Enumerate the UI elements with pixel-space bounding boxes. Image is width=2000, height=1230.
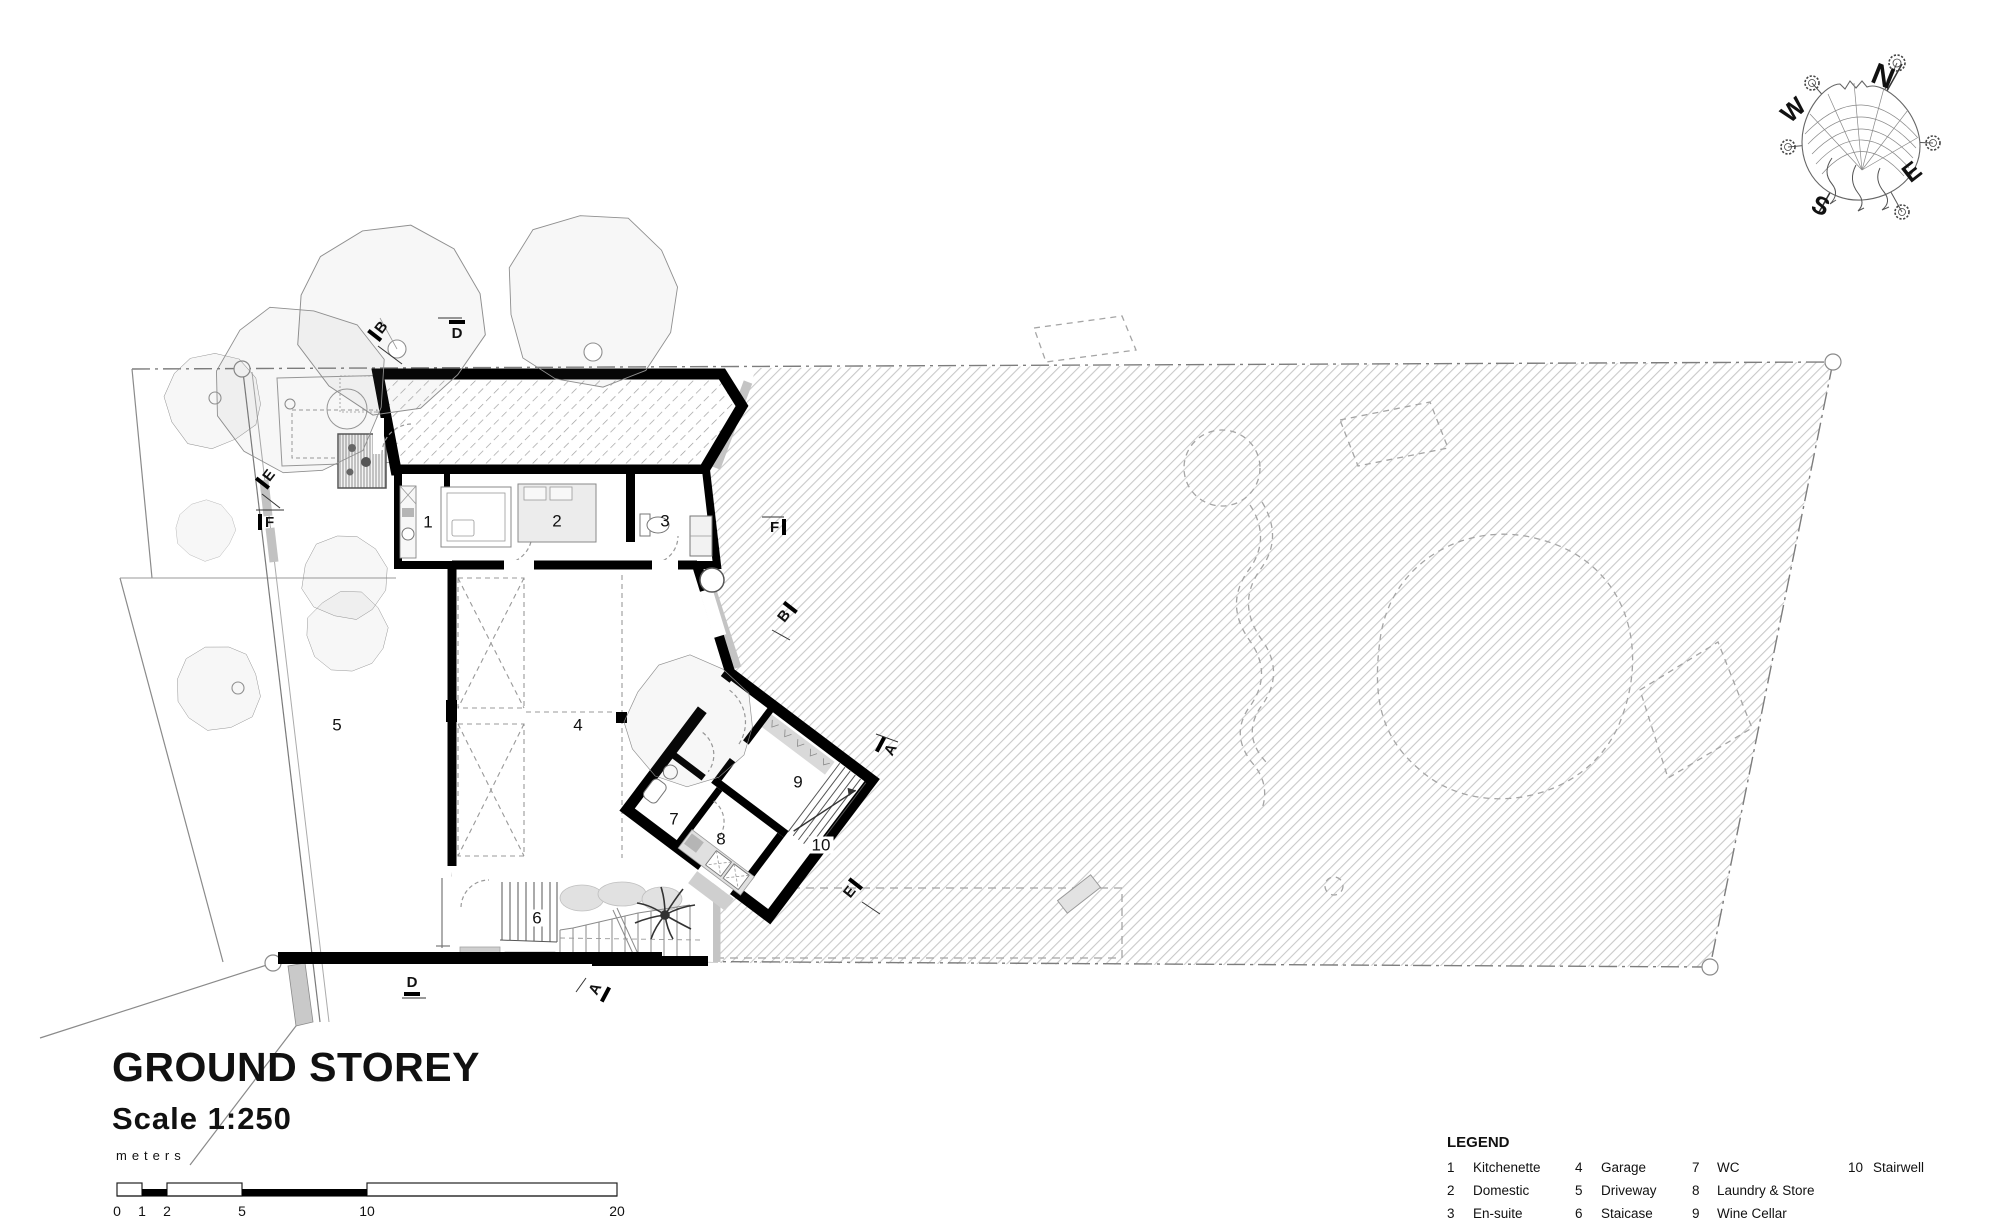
room-label-4: 4 bbox=[573, 717, 582, 734]
legend-item-9: 9Wine Cellar bbox=[1692, 1206, 1787, 1221]
room-label-1: 1 bbox=[423, 514, 432, 531]
legend-item-3: 3En-suite bbox=[1447, 1206, 1523, 1221]
room-label-10: 10 bbox=[809, 837, 834, 854]
room-label-6: 6 bbox=[529, 910, 544, 927]
page-title: GROUND STOREY bbox=[112, 1044, 480, 1091]
scale-bar bbox=[117, 1183, 617, 1196]
stair-garden bbox=[278, 866, 713, 966]
floor-plan-sheet: 1 2 3 4 5 6 7 8 9 10 B D E F F B A E D A… bbox=[0, 0, 2000, 1230]
section-marker-bar bbox=[782, 519, 786, 535]
room-label-9: 9 bbox=[793, 774, 802, 791]
room-label-7: 7 bbox=[669, 811, 678, 828]
compass-rose bbox=[1781, 55, 1940, 219]
room-label-5: 5 bbox=[332, 717, 341, 734]
legend-item-6: 6Staicase bbox=[1575, 1206, 1653, 1221]
legend-item-5: 5Driveway bbox=[1575, 1183, 1657, 1198]
section-marker-bar bbox=[449, 320, 465, 324]
room-label-3: 3 bbox=[660, 513, 669, 530]
legend-item-10: 10Stairwell bbox=[1848, 1160, 1924, 1175]
legend-item-1: 1Kitchenette bbox=[1447, 1160, 1541, 1175]
section-marker-d-bottom: D bbox=[404, 975, 420, 996]
scale-label: Scale 1:250 bbox=[112, 1101, 292, 1137]
scale-tick-1: 1 bbox=[138, 1203, 146, 1219]
scale-units-label: meters bbox=[116, 1148, 186, 1163]
legend-item-2: 2Domestic bbox=[1447, 1183, 1529, 1198]
scale-tick-20: 20 bbox=[609, 1203, 625, 1219]
section-marker-d-top: D bbox=[449, 320, 465, 341]
legend-heading: LEGEND bbox=[1447, 1134, 1510, 1151]
section-marker-bar bbox=[404, 992, 420, 996]
scale-tick-5: 5 bbox=[238, 1203, 246, 1219]
room-label-8: 8 bbox=[716, 831, 725, 848]
room-label-2: 2 bbox=[552, 513, 561, 530]
section-marker-bar bbox=[258, 514, 262, 530]
section-marker-f-left: F bbox=[258, 514, 274, 530]
scale-tick-10: 10 bbox=[359, 1203, 375, 1219]
legend-item-7: 7WC bbox=[1692, 1160, 1740, 1175]
site-hatch-area bbox=[650, 362, 1833, 967]
scale-tick-2: 2 bbox=[163, 1203, 171, 1219]
legend-item-4: 4Garage bbox=[1575, 1160, 1646, 1175]
section-marker-f-mid: F bbox=[770, 519, 786, 535]
legend-item-8: 8Laundry & Store bbox=[1692, 1183, 1815, 1198]
scale-tick-0: 0 bbox=[113, 1203, 121, 1219]
